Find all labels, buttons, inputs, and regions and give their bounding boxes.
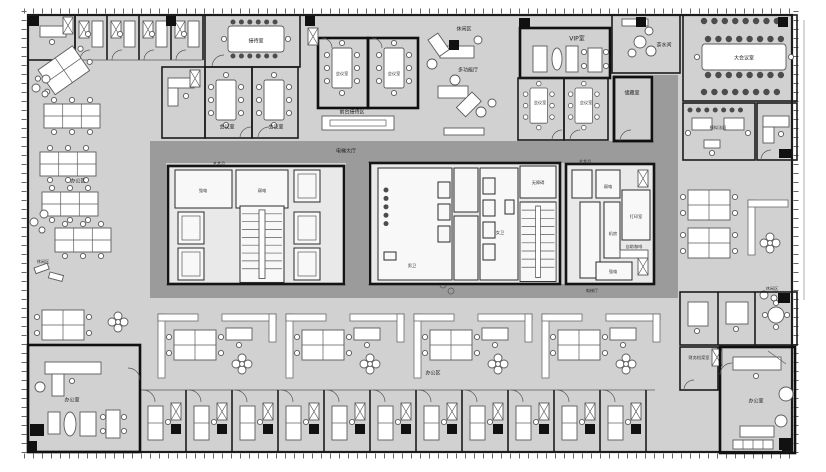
svg-text:弱电: 弱电 xyxy=(258,187,267,194)
svg-text:休闲区: 休闲区 xyxy=(456,26,471,33)
svg-text:无障碍: 无障碍 xyxy=(532,179,545,186)
svg-text:会议室: 会议室 xyxy=(219,124,234,131)
core-middle: 男卫 女卫 无障碍 xyxy=(370,163,560,284)
svg-text:艺术品: 艺术品 xyxy=(213,160,226,167)
svg-text:弱电: 弱电 xyxy=(604,183,613,190)
svg-text:大会议室: 大会议室 xyxy=(734,55,754,62)
svg-text:前台接待区: 前台接待区 xyxy=(339,109,364,116)
svg-text:会议室: 会议室 xyxy=(388,70,401,77)
svg-text:办公室: 办公室 xyxy=(64,397,79,404)
svg-text:茶水间: 茶水间 xyxy=(656,42,671,49)
svg-text:财务档案室: 财务档案室 xyxy=(689,354,710,361)
svg-text:办公区: 办公区 xyxy=(70,178,85,185)
svg-text:机房: 机房 xyxy=(609,230,617,237)
svg-text:多功能厅: 多功能厅 xyxy=(458,67,478,74)
floor-plan-page: 接待室 会议室 会议室 会议室 会议室 前台接待区 xyxy=(0,0,826,472)
svg-text:储藏室: 储藏室 xyxy=(624,90,639,97)
core-east: 弱电 机房 打印室 自助咖啡 强电 艺术品 xyxy=(566,158,654,284)
svg-text:办公区: 办公区 xyxy=(425,370,440,377)
svg-text:VIP室: VIP室 xyxy=(569,35,585,43)
svg-text:艺术品: 艺术品 xyxy=(579,158,592,165)
svg-text:办公室: 办公室 xyxy=(748,398,763,405)
svg-text:强电: 强电 xyxy=(199,187,208,194)
svg-text:会议室: 会议室 xyxy=(336,70,349,77)
svg-text:休闲区: 休闲区 xyxy=(766,285,779,292)
svg-text:会议室: 会议室 xyxy=(268,124,283,131)
svg-text:会议室: 会议室 xyxy=(534,99,547,106)
svg-text:女卫: 女卫 xyxy=(496,229,504,236)
core-west: 强电 弱电 艺术品 xyxy=(168,160,344,284)
svg-text:会议室: 会议室 xyxy=(580,99,593,106)
storage-room: 储藏室 xyxy=(614,77,652,141)
room-label: 接待室 xyxy=(248,38,263,45)
floor-plan-canvas: 接待室 会议室 会议室 会议室 会议室 前台接待区 xyxy=(0,0,826,472)
svg-text:模拟法庭: 模拟法庭 xyxy=(710,124,728,131)
svg-text:自助咖啡: 自助咖啡 xyxy=(626,243,644,250)
corridor-label-east: 电梯厅 xyxy=(586,287,599,294)
svg-text:打印室: 打印室 xyxy=(630,213,643,220)
corridor-label-main: 电梯大厅 xyxy=(336,148,356,155)
svg-text:强电: 强电 xyxy=(609,268,618,275)
